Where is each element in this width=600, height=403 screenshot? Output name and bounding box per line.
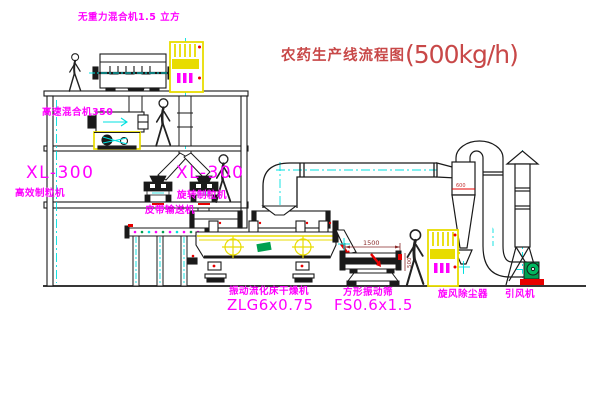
label-top-mixer: 无重力混合机1.5 立方 [78,13,180,23]
control-cabinet-ground [428,230,458,286]
label-granulator-left-name: 高效制粒机 [15,189,65,199]
label-second-mixer: 高速混合机350 [42,108,113,118]
gravity-free-mixer [89,54,177,91]
induced-draft-fan-machine [520,262,544,285]
person-figure [156,99,170,146]
label-granulator-right-name: 旋转制粒机 [177,191,227,201]
label-belt-conveyor: 皮带输送机 [145,206,195,216]
label-sieve-model: FS0.6x1.5 [334,298,413,313]
title-capacity: (500kg/h) [405,40,518,69]
label-induced-fan: 引风机 [505,290,535,300]
drawing-title: 农药生产线流程图(500kg/h) [281,40,518,69]
cyclone-note: 600 [456,183,466,189]
cad-flow-diagram: 1500 500 600 农药生产线流程图(500kg/h) 无重力混合机1.5… [0,0,600,403]
elevator-boot-pipe [177,96,193,146]
control-cabinet-top [170,42,203,92]
label-dryer-model: ZLG6x0.75 [227,298,314,313]
title-text: 农药生产线流程图 [281,48,405,64]
granulator-left-machine [144,176,172,205]
mixer-discharge-pipe [129,96,142,112]
label-granulator-left-model: XL-300 [26,165,94,182]
fluid-bed-dryer-machine [188,206,356,282]
sieve-length-dim: 1500 [363,239,380,247]
exhaust-duct [263,163,456,208]
label-cyclone: 旋风除尘器 [438,290,488,300]
label-granulator-right-model: XL-300 [176,165,244,182]
person-figure [69,54,80,92]
